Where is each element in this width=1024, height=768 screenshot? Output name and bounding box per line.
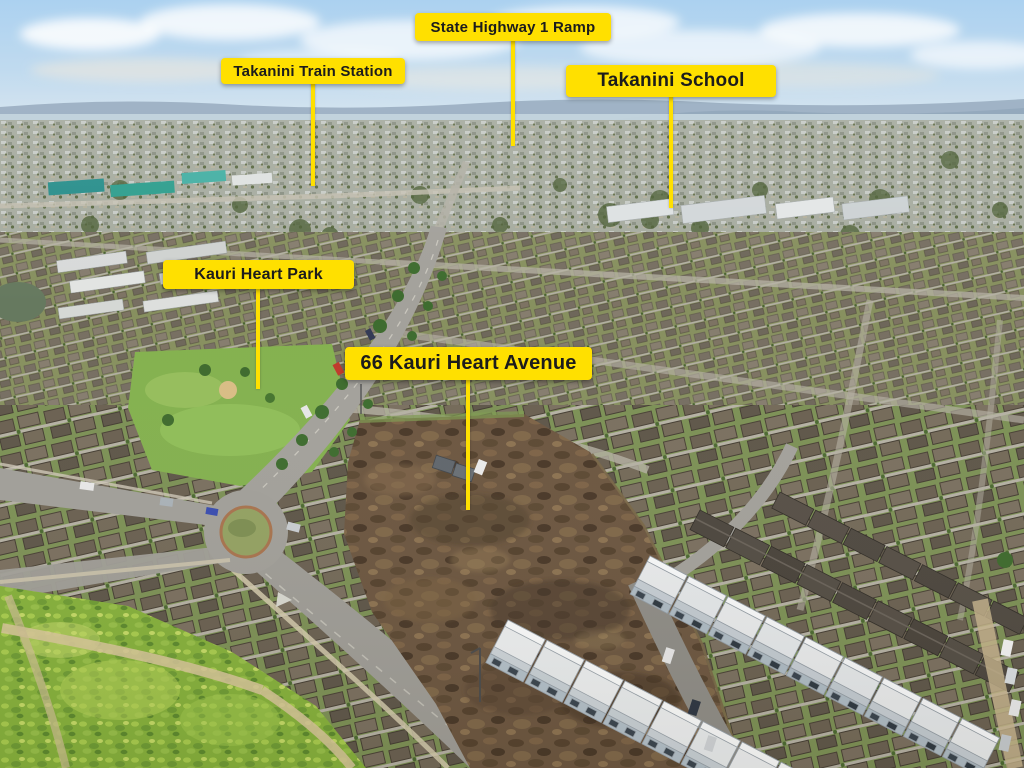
leader-line-takanini-train-station [311,83,315,186]
leader-line-property-address [466,379,470,510]
aerial-photo: State Highway 1 Ramp Takanini Train Stat… [0,0,1024,768]
callout-property-address: 66 Kauri Heart Avenue [345,347,592,380]
callout-kauri-heart-park: Kauri Heart Park [163,260,354,289]
leader-line-state-highway-1-ramp [511,40,515,146]
callout-state-highway-1-ramp: State Highway 1 Ramp [415,13,611,41]
leader-line-kauri-heart-park [256,288,260,389]
callout-takanini-train-station: Takanini Train Station [221,58,405,84]
leader-line-takanini-school [669,96,673,208]
callout-takanini-school: Takanini School [566,65,776,97]
